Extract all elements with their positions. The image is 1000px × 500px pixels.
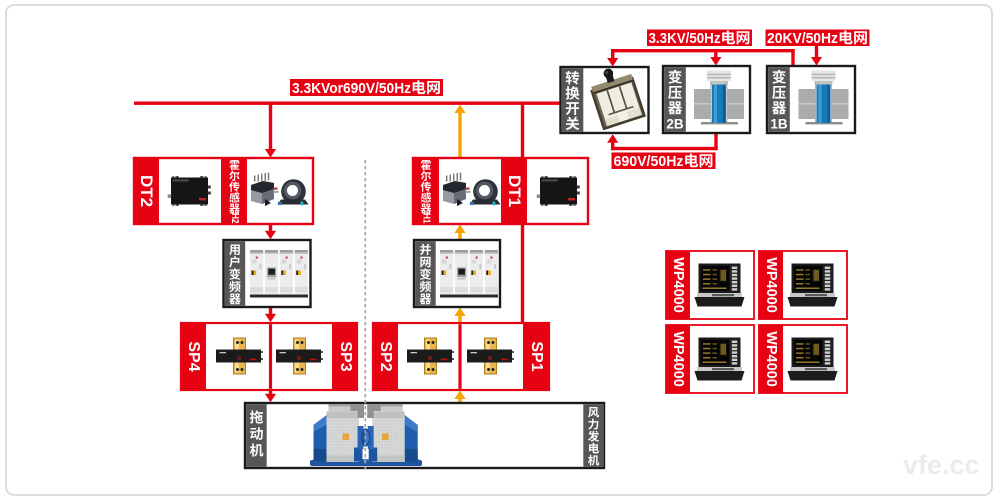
svg-text:3.3KVor690V/50Hz: 3.3KVor690V/50Hz [292, 80, 411, 97]
svg-text:690V/50Hz: 690V/50Hz [614, 153, 684, 170]
svg-text:SP4: SP4 [185, 341, 202, 371]
svg-text:1B: 1B [770, 117, 788, 132]
svg-text:WP4000: WP4000 [763, 331, 779, 387]
svg-text:WP4000: WP4000 [670, 331, 686, 387]
svg-text:WP4000: WP4000 [670, 257, 686, 313]
svg-text:SP1: SP1 [528, 341, 545, 371]
svg-text:DT2: DT2 [137, 175, 156, 207]
svg-text:H2: H2 [229, 213, 240, 224]
svg-text:WP4000: WP4000 [763, 257, 779, 313]
svg-text:SP2: SP2 [377, 341, 394, 371]
svg-text:3.3KV/50Hz: 3.3KV/50Hz [649, 30, 721, 47]
svg-text:2B: 2B [666, 117, 684, 132]
svg-text:SP3: SP3 [337, 341, 354, 371]
svg-text:20KV/50Hz: 20KV/50Hz [767, 30, 838, 47]
svg-text:H1: H1 [421, 213, 432, 224]
svg-text:vfe.cc: vfe.cc [903, 450, 980, 480]
svg-text:DT1: DT1 [505, 175, 524, 207]
